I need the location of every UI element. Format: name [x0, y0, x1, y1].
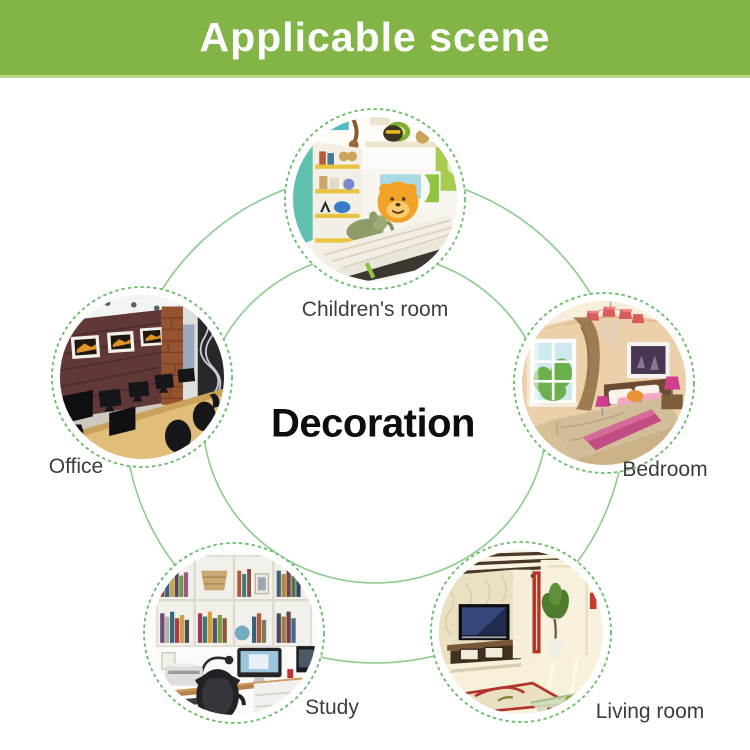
- office-photo: [50, 285, 234, 469]
- childrens-room-photo: [283, 107, 467, 291]
- scene-label-bedroom: Bedroom: [622, 458, 707, 482]
- bedroom-photo: [512, 291, 696, 475]
- living-room-photo: [429, 540, 613, 724]
- scene-label-living-room: Living room: [596, 700, 705, 724]
- scene-node-childrens-room: [283, 107, 467, 291]
- center-label-decoration: Decoration: [271, 402, 475, 447]
- scene-node-office: [50, 285, 234, 469]
- scene-label-office: Office: [49, 455, 103, 479]
- scene-label-study: Study: [305, 696, 359, 720]
- study-photo: [142, 541, 326, 725]
- scene-node-study: [142, 541, 326, 725]
- scene-label-childrens-room: Children's room: [302, 298, 448, 322]
- applicable-scene-infographic: Applicable scene: [0, 0, 750, 750]
- scene-node-bedroom: [512, 291, 696, 475]
- scene-node-living-room: [429, 540, 613, 724]
